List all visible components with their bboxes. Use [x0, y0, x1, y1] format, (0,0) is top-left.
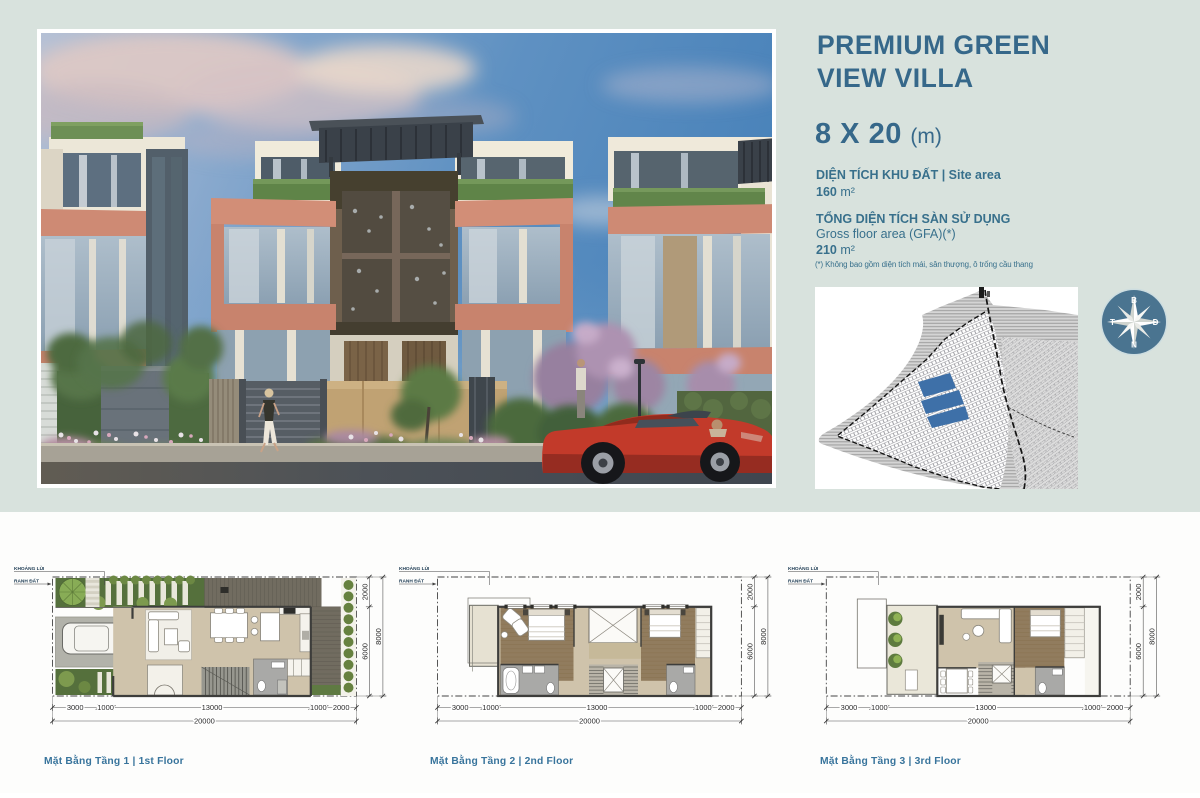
- svg-text:2000: 2000: [1134, 584, 1143, 601]
- svg-text:2000: 2000: [745, 584, 754, 601]
- svg-text:B: B: [1131, 296, 1137, 305]
- svg-text:1000: 1000: [695, 703, 712, 712]
- svg-text:2000: 2000: [1107, 703, 1124, 712]
- svg-text:3000: 3000: [67, 703, 84, 712]
- svg-text:1000: 1000: [871, 703, 888, 712]
- svg-text:1000: 1000: [97, 703, 114, 712]
- svg-text:8000: 8000: [759, 628, 768, 645]
- svg-text:RANH ĐẤT: RANH ĐẤT: [788, 578, 813, 585]
- svg-text:1000: 1000: [482, 703, 499, 712]
- svg-text:2000: 2000: [718, 703, 735, 712]
- svg-text:20000: 20000: [579, 716, 600, 725]
- svg-text:2000: 2000: [360, 584, 369, 601]
- svg-text:8000: 8000: [1148, 628, 1157, 645]
- svg-text:8000: 8000: [374, 628, 383, 645]
- svg-text:Mặt Bằng Tầng 1 | 1st Floor: Mặt Bằng Tầng 1 | 1st Floor: [44, 754, 184, 767]
- svg-text:Mặt Bằng Tầng 3 | 3rd Floor: Mặt Bằng Tầng 3 | 3rd Floor: [820, 754, 961, 767]
- svg-text:Đ: Đ: [1153, 318, 1159, 327]
- svg-text:T: T: [1110, 318, 1115, 327]
- svg-text:N: N: [1131, 341, 1137, 350]
- svg-text:3000: 3000: [841, 703, 858, 712]
- svg-text:13000: 13000: [975, 703, 996, 712]
- svg-text:13000: 13000: [587, 703, 608, 712]
- svg-text:6000: 6000: [745, 643, 754, 660]
- svg-text:KHOẢNG LÙI: KHOẢNG LÙI: [788, 565, 819, 572]
- svg-text:2000: 2000: [333, 703, 350, 712]
- svg-text:RANH ĐẤT: RANH ĐẤT: [14, 578, 39, 585]
- svg-text:13000: 13000: [202, 703, 223, 712]
- svg-text:3000: 3000: [452, 703, 469, 712]
- svg-text:6000: 6000: [1134, 643, 1143, 660]
- svg-text:KHOẢNG LÙI: KHOẢNG LÙI: [399, 565, 430, 572]
- svg-text:Mặt Bằng Tầng 2 | 2nd Floor: Mặt Bằng Tầng 2 | 2nd Floor: [430, 754, 573, 767]
- svg-text:20000: 20000: [968, 716, 989, 725]
- svg-text:RANH ĐẤT: RANH ĐẤT: [399, 578, 424, 585]
- svg-text:1000: 1000: [1084, 703, 1101, 712]
- svg-text:1000: 1000: [310, 703, 327, 712]
- svg-text:KHOẢNG LÙI: KHOẢNG LÙI: [14, 565, 45, 572]
- svg-text:6000: 6000: [360, 643, 369, 660]
- svg-text:20000: 20000: [194, 716, 215, 725]
